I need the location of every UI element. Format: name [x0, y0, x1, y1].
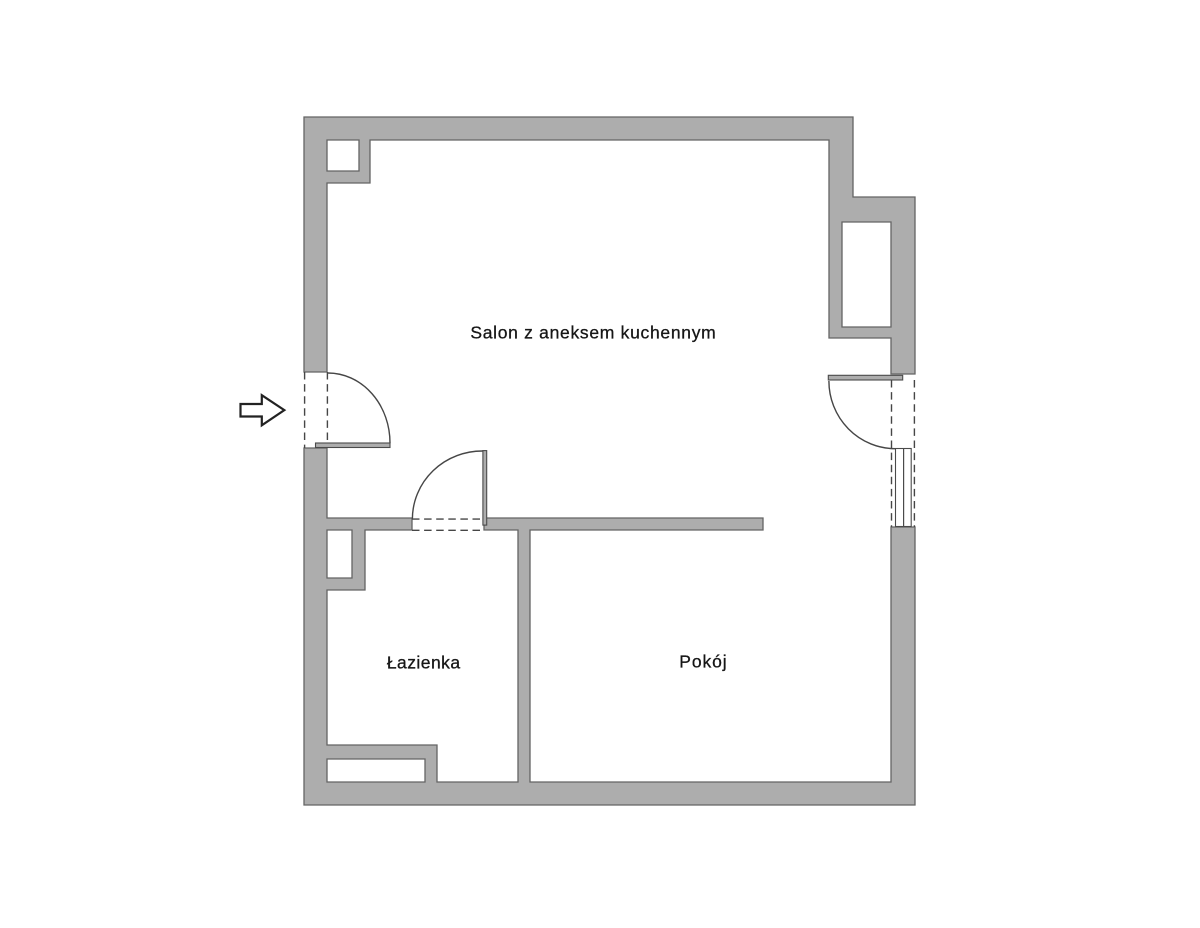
svg-text:Salon z aneksem kuchennym: Salon z aneksem kuchennym [470, 323, 716, 343]
svg-text:Pokój: Pokój [679, 652, 727, 672]
svg-text:Łazienka: Łazienka [387, 653, 461, 673]
